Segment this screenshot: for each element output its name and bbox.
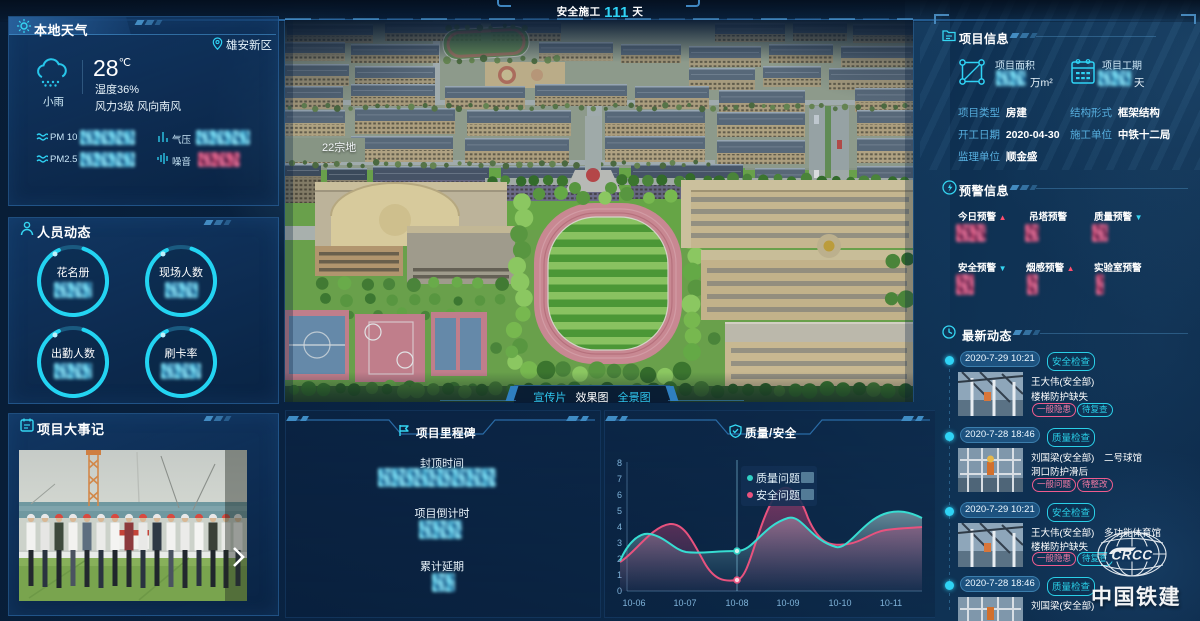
svg-text:10-10: 10-10 bbox=[828, 598, 851, 608]
svg-text:10-08: 10-08 bbox=[725, 598, 748, 608]
svg-text:质量问题: 质量问题 bbox=[756, 472, 800, 485]
svg-text:CRCC: CRCC bbox=[1110, 548, 1154, 563]
svg-text:安全问题: 安全问题 bbox=[756, 488, 800, 502]
svg-text:4: 4 bbox=[617, 522, 622, 532]
svg-text:10-11: 10-11 bbox=[880, 598, 902, 608]
svg-text:10-06: 10-06 bbox=[622, 598, 645, 608]
svg-text:7: 7 bbox=[617, 474, 622, 484]
svg-text:5: 5 bbox=[617, 506, 622, 516]
svg-text:10-09: 10-09 bbox=[776, 598, 799, 608]
svg-text:8: 8 bbox=[617, 458, 622, 468]
svg-text:10-07: 10-07 bbox=[673, 598, 696, 608]
svg-text:6: 6 bbox=[617, 490, 622, 500]
svg-text:3: 3 bbox=[617, 538, 622, 548]
